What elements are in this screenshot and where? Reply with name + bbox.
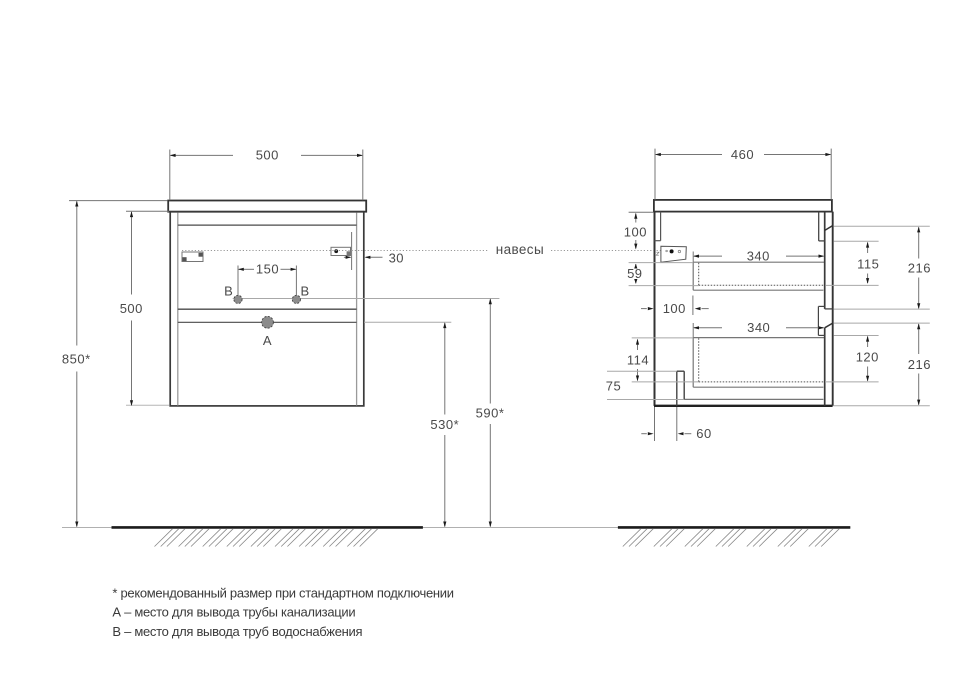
svg-text:150: 150 — [256, 262, 279, 277]
svg-text:B: B — [224, 283, 233, 298]
svg-text:A: A — [263, 333, 272, 348]
svg-text:340: 340 — [747, 320, 770, 335]
svg-text:75: 75 — [606, 379, 621, 394]
svg-text:216: 216 — [908, 261, 931, 276]
svg-text:530*: 530* — [430, 417, 459, 432]
svg-text:60: 60 — [696, 426, 711, 441]
svg-text:500: 500 — [256, 148, 279, 163]
svg-text:* рекомендованный размер при с: * рекомендованный размер при стандартном… — [112, 585, 453, 600]
svg-text:216: 216 — [908, 357, 931, 372]
svg-text:59: 59 — [627, 266, 642, 281]
svg-text:115: 115 — [857, 257, 879, 272]
svg-text:А – место для вывода трубы кан: А – место для вывода трубы канализации — [112, 604, 355, 619]
svg-text:100: 100 — [624, 225, 647, 240]
svg-text:340: 340 — [747, 248, 770, 263]
svg-text:850*: 850* — [62, 351, 91, 366]
svg-text:В – место для вывода труб водо: В – место для вывода труб водоснабжения — [112, 624, 362, 639]
svg-text:120: 120 — [856, 350, 879, 365]
svg-text:590*: 590* — [476, 406, 505, 421]
svg-text:500: 500 — [120, 301, 143, 316]
svg-text:114: 114 — [627, 353, 649, 368]
svg-text:100: 100 — [663, 301, 686, 316]
svg-text:30: 30 — [389, 250, 404, 265]
svg-text:B: B — [300, 283, 309, 298]
svg-text:навесы: навесы — [496, 242, 544, 257]
svg-text:460: 460 — [731, 147, 754, 162]
